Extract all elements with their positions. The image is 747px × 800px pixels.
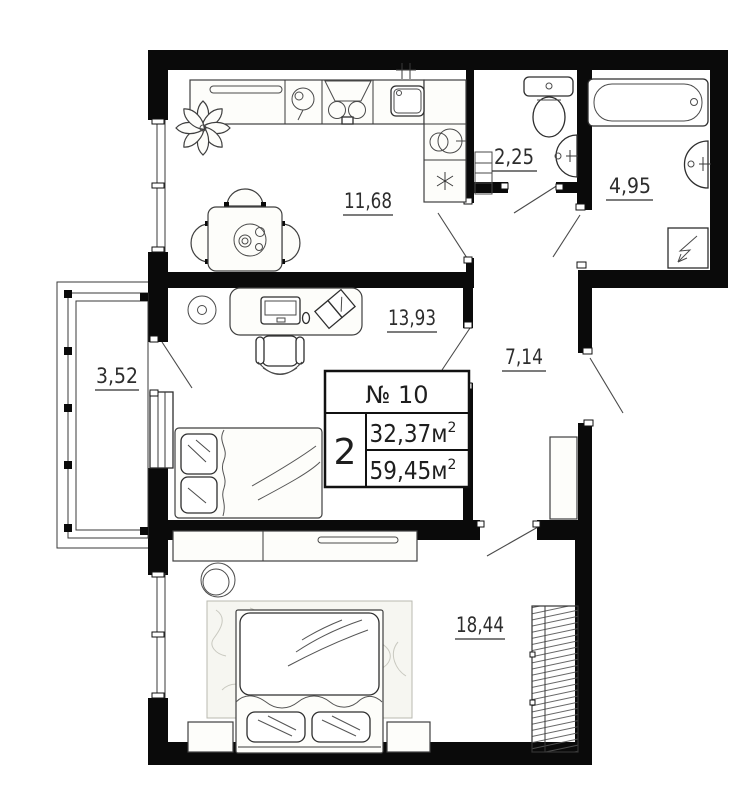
living-room: 13,93 № 10 2 32,37м2 59,45м2 <box>175 288 469 518</box>
mouse-icon <box>303 313 310 324</box>
living-room-area-label: 13,93 <box>388 306 436 330</box>
toilet-area-label: 2,25 <box>494 145 534 169</box>
toilet-door-leaf <box>514 185 558 213</box>
wardrobe-icon <box>530 606 578 752</box>
desk-chair-icon <box>256 336 304 375</box>
balcony: 3,52 <box>57 282 148 548</box>
bathtub-icon <box>588 79 708 126</box>
toilet-washbasin-icon <box>555 135 578 177</box>
floor-plan: 3,52 <box>0 0 747 800</box>
unit-living-area: 32,37м2 <box>370 419 457 448</box>
bathroom-washbasin-icon <box>684 141 711 188</box>
bedroom: 18,44 <box>173 531 578 753</box>
dining-table-icon <box>191 189 300 271</box>
unit-rooms-count: 2 <box>334 432 357 473</box>
balcony-outline <box>57 282 148 548</box>
floor-plan-drawing: 3,52 <box>0 0 747 800</box>
water-heater-icon <box>668 228 708 268</box>
dining-chair-icon <box>191 224 209 262</box>
kitchen-door-leaf <box>438 213 467 258</box>
toilet-room: 2,25 <box>475 77 578 194</box>
kitchen-area-label: 11,68 <box>344 189 392 213</box>
hallway: 7,14 <box>502 345 577 519</box>
balcony-area-label: 3,52 <box>96 364 138 388</box>
dining-chair-icon <box>227 189 263 206</box>
dresser-icon <box>173 531 417 561</box>
balcony-door-leaf <box>162 342 192 388</box>
single-bed-icon <box>175 428 322 518</box>
pillow-icon <box>247 712 305 742</box>
unit-total-area: 59,45м2 <box>370 456 457 485</box>
kitchen-sink-icon <box>391 63 424 116</box>
toilet-icon <box>524 77 573 137</box>
balcony-glazing <box>64 290 148 538</box>
entrance-door-leaf <box>590 358 623 413</box>
pouf-icon <box>201 563 235 597</box>
unit-number-label: № 10 <box>365 381 428 409</box>
living-room-door-leaf <box>442 328 470 370</box>
bedroom-door-leaf <box>487 527 538 556</box>
double-bed-icon <box>236 610 383 753</box>
hallway-area-label: 7,14 <box>505 345 543 369</box>
stool-icon <box>188 296 216 324</box>
bathroom: 4,95 <box>588 79 711 268</box>
bedroom-area-label: 18,44 <box>456 613 504 637</box>
nightstand-icon <box>188 722 233 752</box>
kitchen-room: 11,68 <box>176 63 466 271</box>
dining-chair-icon <box>282 224 300 262</box>
pillow-icon <box>312 712 370 742</box>
bathroom-area-label: 4,95 <box>609 174 651 198</box>
nightstand-icon <box>387 722 430 752</box>
bathroom-door-leaf <box>553 215 580 257</box>
bedroom-window-icon <box>152 572 165 698</box>
plant-icon <box>176 101 230 155</box>
living-room-window-icon <box>150 392 173 468</box>
kitchen-window-icon <box>152 119 165 252</box>
hallway-cabinet <box>550 437 577 519</box>
unit-info-box: № 10 2 32,37м2 59,45м2 <box>325 371 469 487</box>
monitor-icon <box>261 297 300 324</box>
